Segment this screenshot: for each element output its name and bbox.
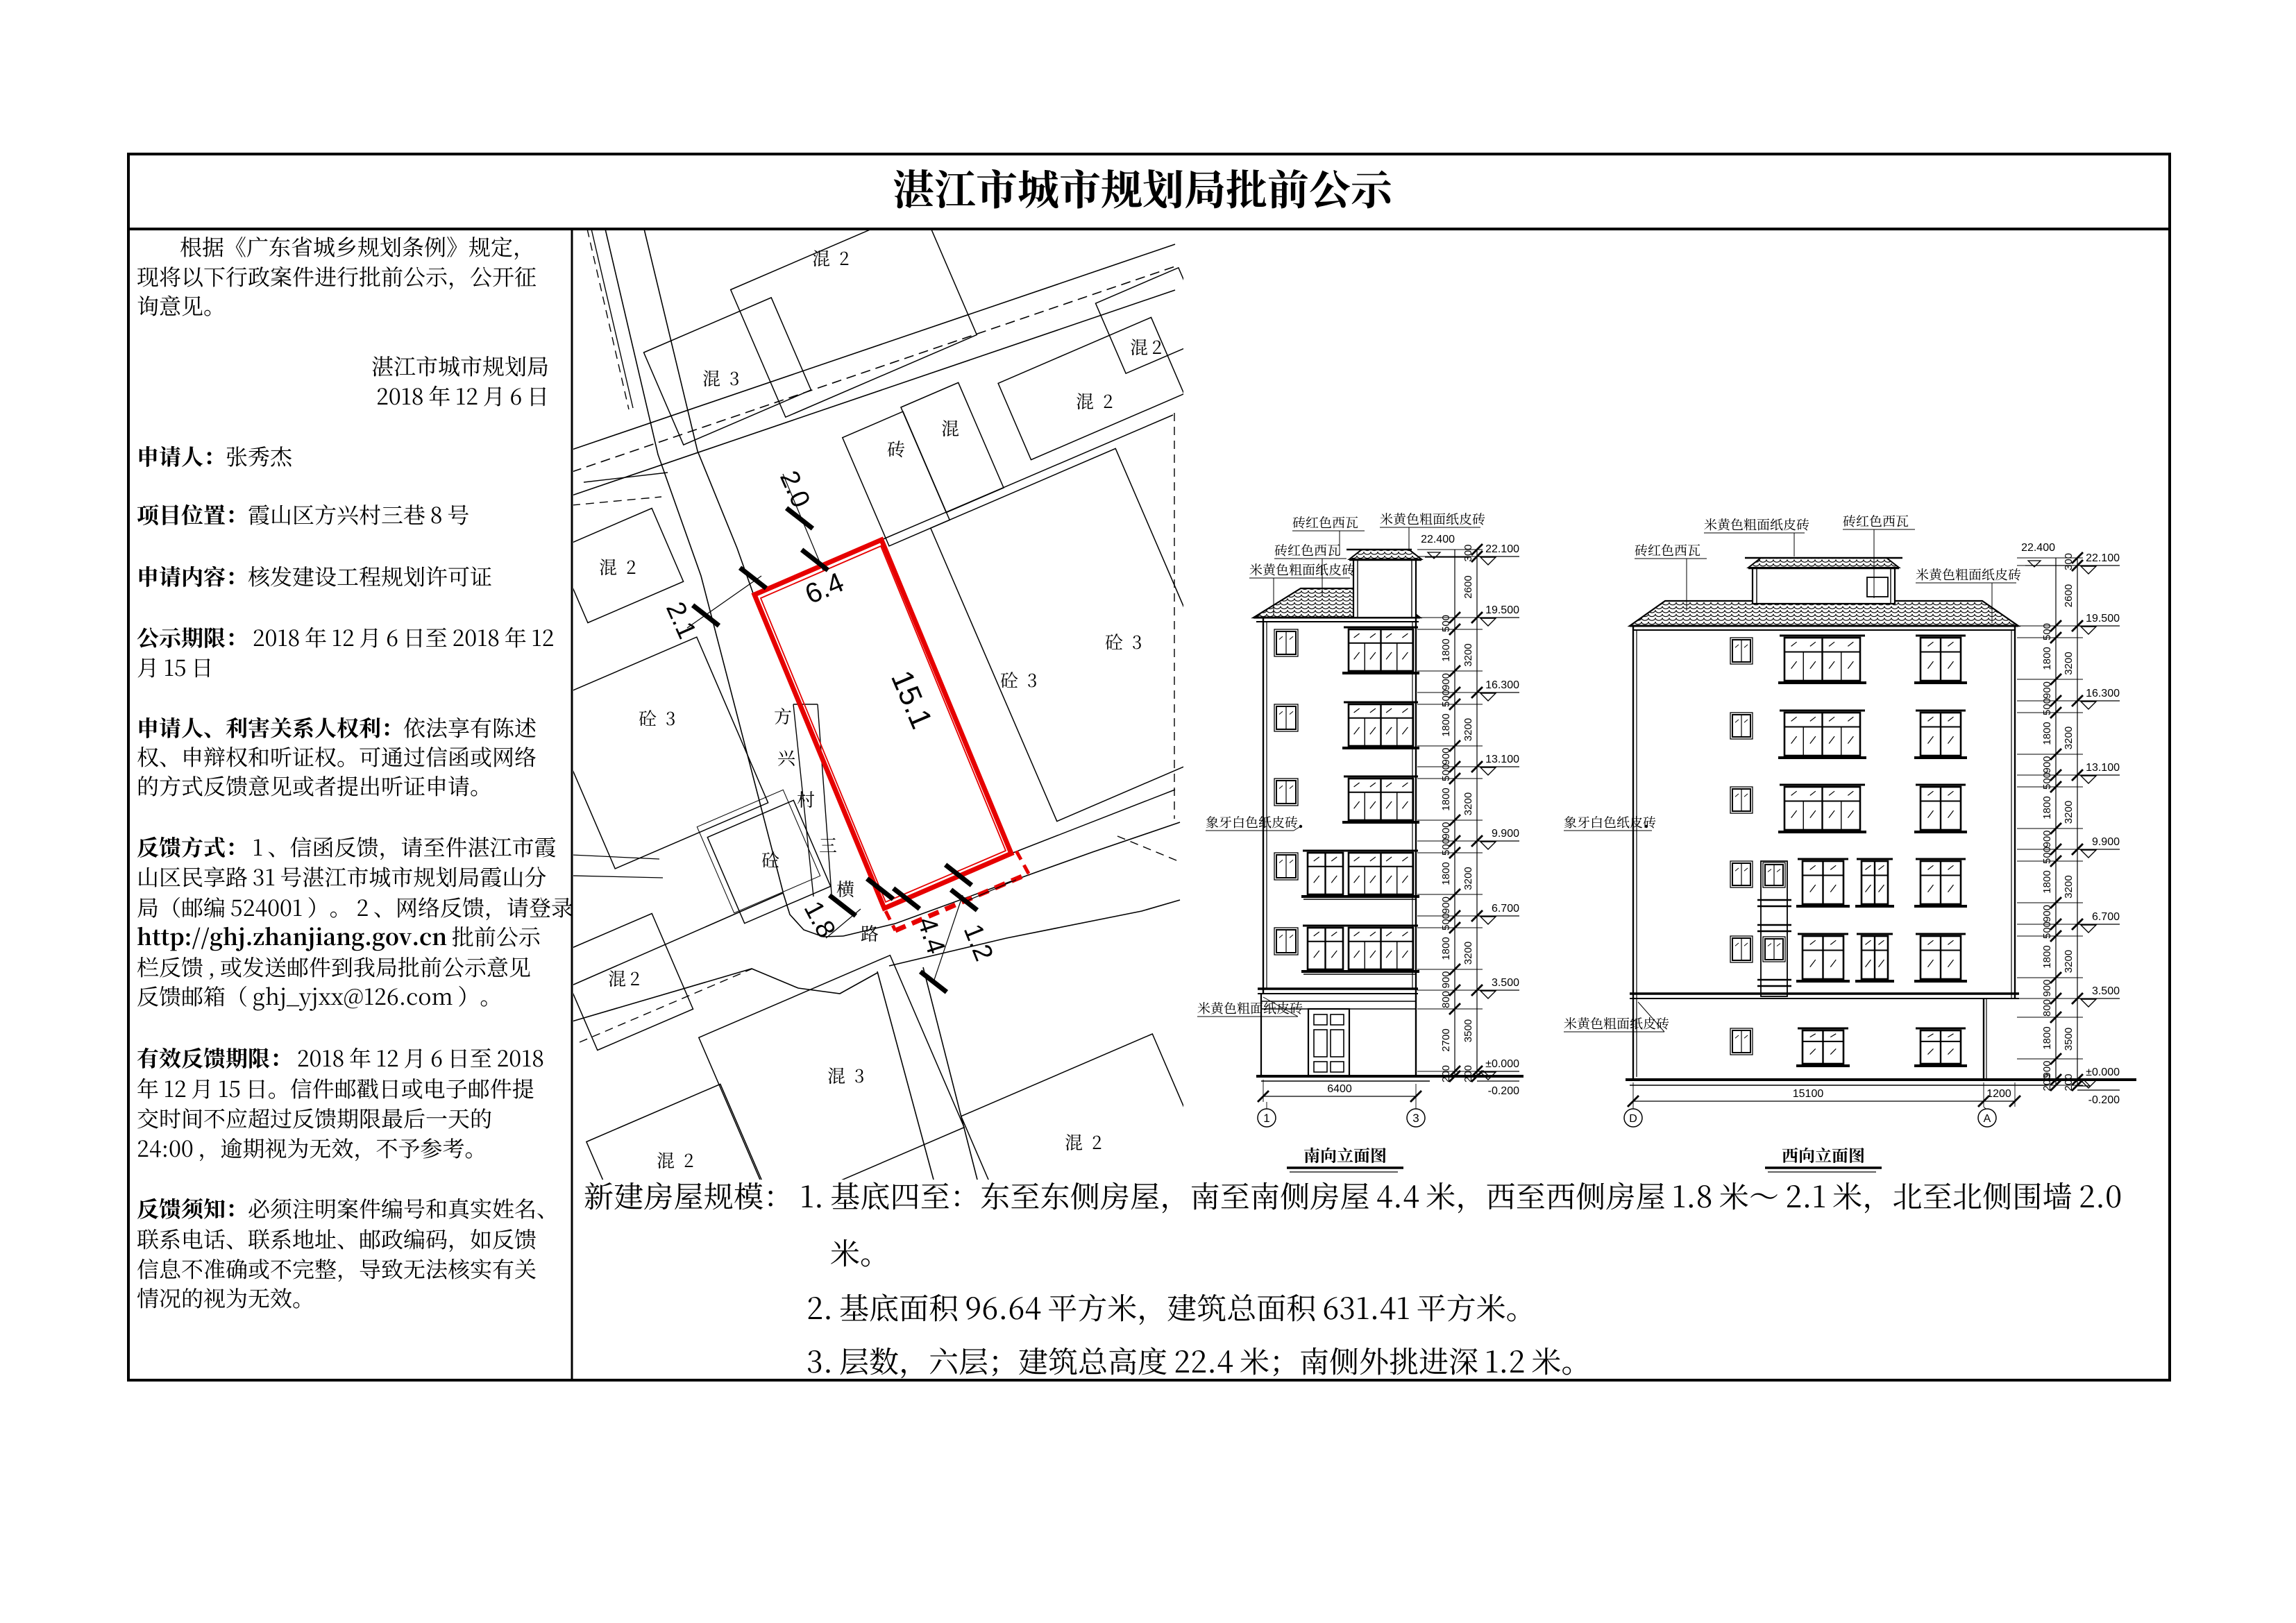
svg-text:13.100: 13.100 (2086, 762, 2120, 774)
svg-text:3.500: 3.500 (2092, 985, 2120, 997)
svg-text:1800: 1800 (2041, 945, 2053, 968)
svg-text:1.8: 1.8 (798, 897, 841, 942)
svg-text:3200: 3200 (1462, 792, 1474, 815)
svg-text:22.100: 22.100 (2086, 552, 2120, 564)
svg-text:1800: 1800 (1440, 713, 1452, 736)
svg-text:3200: 3200 (1462, 643, 1474, 666)
svg-text:3500: 3500 (2063, 1028, 2075, 1051)
svg-text:6400: 6400 (1327, 1083, 1352, 1095)
svg-text:1: 1 (1263, 1112, 1269, 1125)
svg-text:3200: 3200 (1462, 867, 1474, 890)
svg-text:19.500: 19.500 (2086, 613, 2120, 624)
svg-text:±0.000: ±0.000 (2086, 1067, 2120, 1078)
svg-text:-0.200: -0.200 (2088, 1094, 2120, 1106)
svg-text:2600: 2600 (2063, 584, 2075, 607)
svg-text:±0.000: ±0.000 (1485, 1058, 1519, 1070)
svg-text:6.700: 6.700 (1492, 903, 1519, 915)
svg-text:22.400: 22.400 (1421, 534, 1455, 545)
svg-text:15100: 15100 (1793, 1088, 1824, 1100)
svg-text:1200: 1200 (1986, 1088, 2011, 1100)
svg-text:-0.200: -0.200 (1488, 1085, 1519, 1097)
svg-text:3500: 3500 (1462, 1019, 1474, 1042)
svg-text:3200: 3200 (2063, 652, 2075, 674)
svg-text:9.900: 9.900 (2092, 836, 2120, 848)
svg-text:2600: 2600 (1462, 575, 1474, 598)
svg-text:9.900: 9.900 (1492, 828, 1519, 840)
svg-text:3200: 3200 (1462, 718, 1474, 741)
svg-text:15.1: 15.1 (884, 665, 939, 733)
svg-text:1800: 1800 (1440, 788, 1452, 810)
svg-text:1800: 1800 (1440, 638, 1452, 661)
svg-text:1800: 1800 (2041, 647, 2053, 670)
svg-text:3200: 3200 (2063, 726, 2075, 749)
svg-text:22.400: 22.400 (2021, 542, 2055, 554)
svg-text:13.100: 13.100 (1485, 754, 1519, 765)
svg-text:2.0: 2.0 (774, 466, 816, 511)
svg-text:19.500: 19.500 (1485, 604, 1519, 616)
svg-text:1800: 1800 (2041, 1026, 2053, 1049)
svg-text:3: 3 (1412, 1112, 1419, 1125)
svg-text:4.4: 4.4 (911, 914, 950, 958)
svg-text:2700: 2700 (1440, 1028, 1452, 1051)
svg-text:1800: 1800 (1440, 937, 1452, 960)
svg-text:1.2: 1.2 (958, 920, 999, 965)
svg-text:16.300: 16.300 (1485, 679, 1519, 691)
svg-text:6.700: 6.700 (2092, 911, 2120, 923)
svg-text:3200: 3200 (2063, 801, 2075, 824)
svg-text:1800: 1800 (2041, 796, 2053, 819)
svg-text:3200: 3200 (2063, 950, 2075, 973)
svg-text:1800: 1800 (1440, 862, 1452, 885)
svg-text:16.300: 16.300 (2086, 688, 2120, 699)
svg-text:D: D (1629, 1113, 1637, 1125)
svg-text:22.100: 22.100 (1485, 543, 1519, 555)
svg-text:A: A (1984, 1113, 1991, 1125)
svg-text:3200: 3200 (1462, 942, 1474, 965)
svg-text:3.500: 3.500 (1492, 977, 1519, 989)
svg-text:1800: 1800 (2041, 722, 2053, 745)
svg-text:1800: 1800 (2041, 870, 2053, 893)
svg-text:3200: 3200 (2063, 875, 2075, 898)
